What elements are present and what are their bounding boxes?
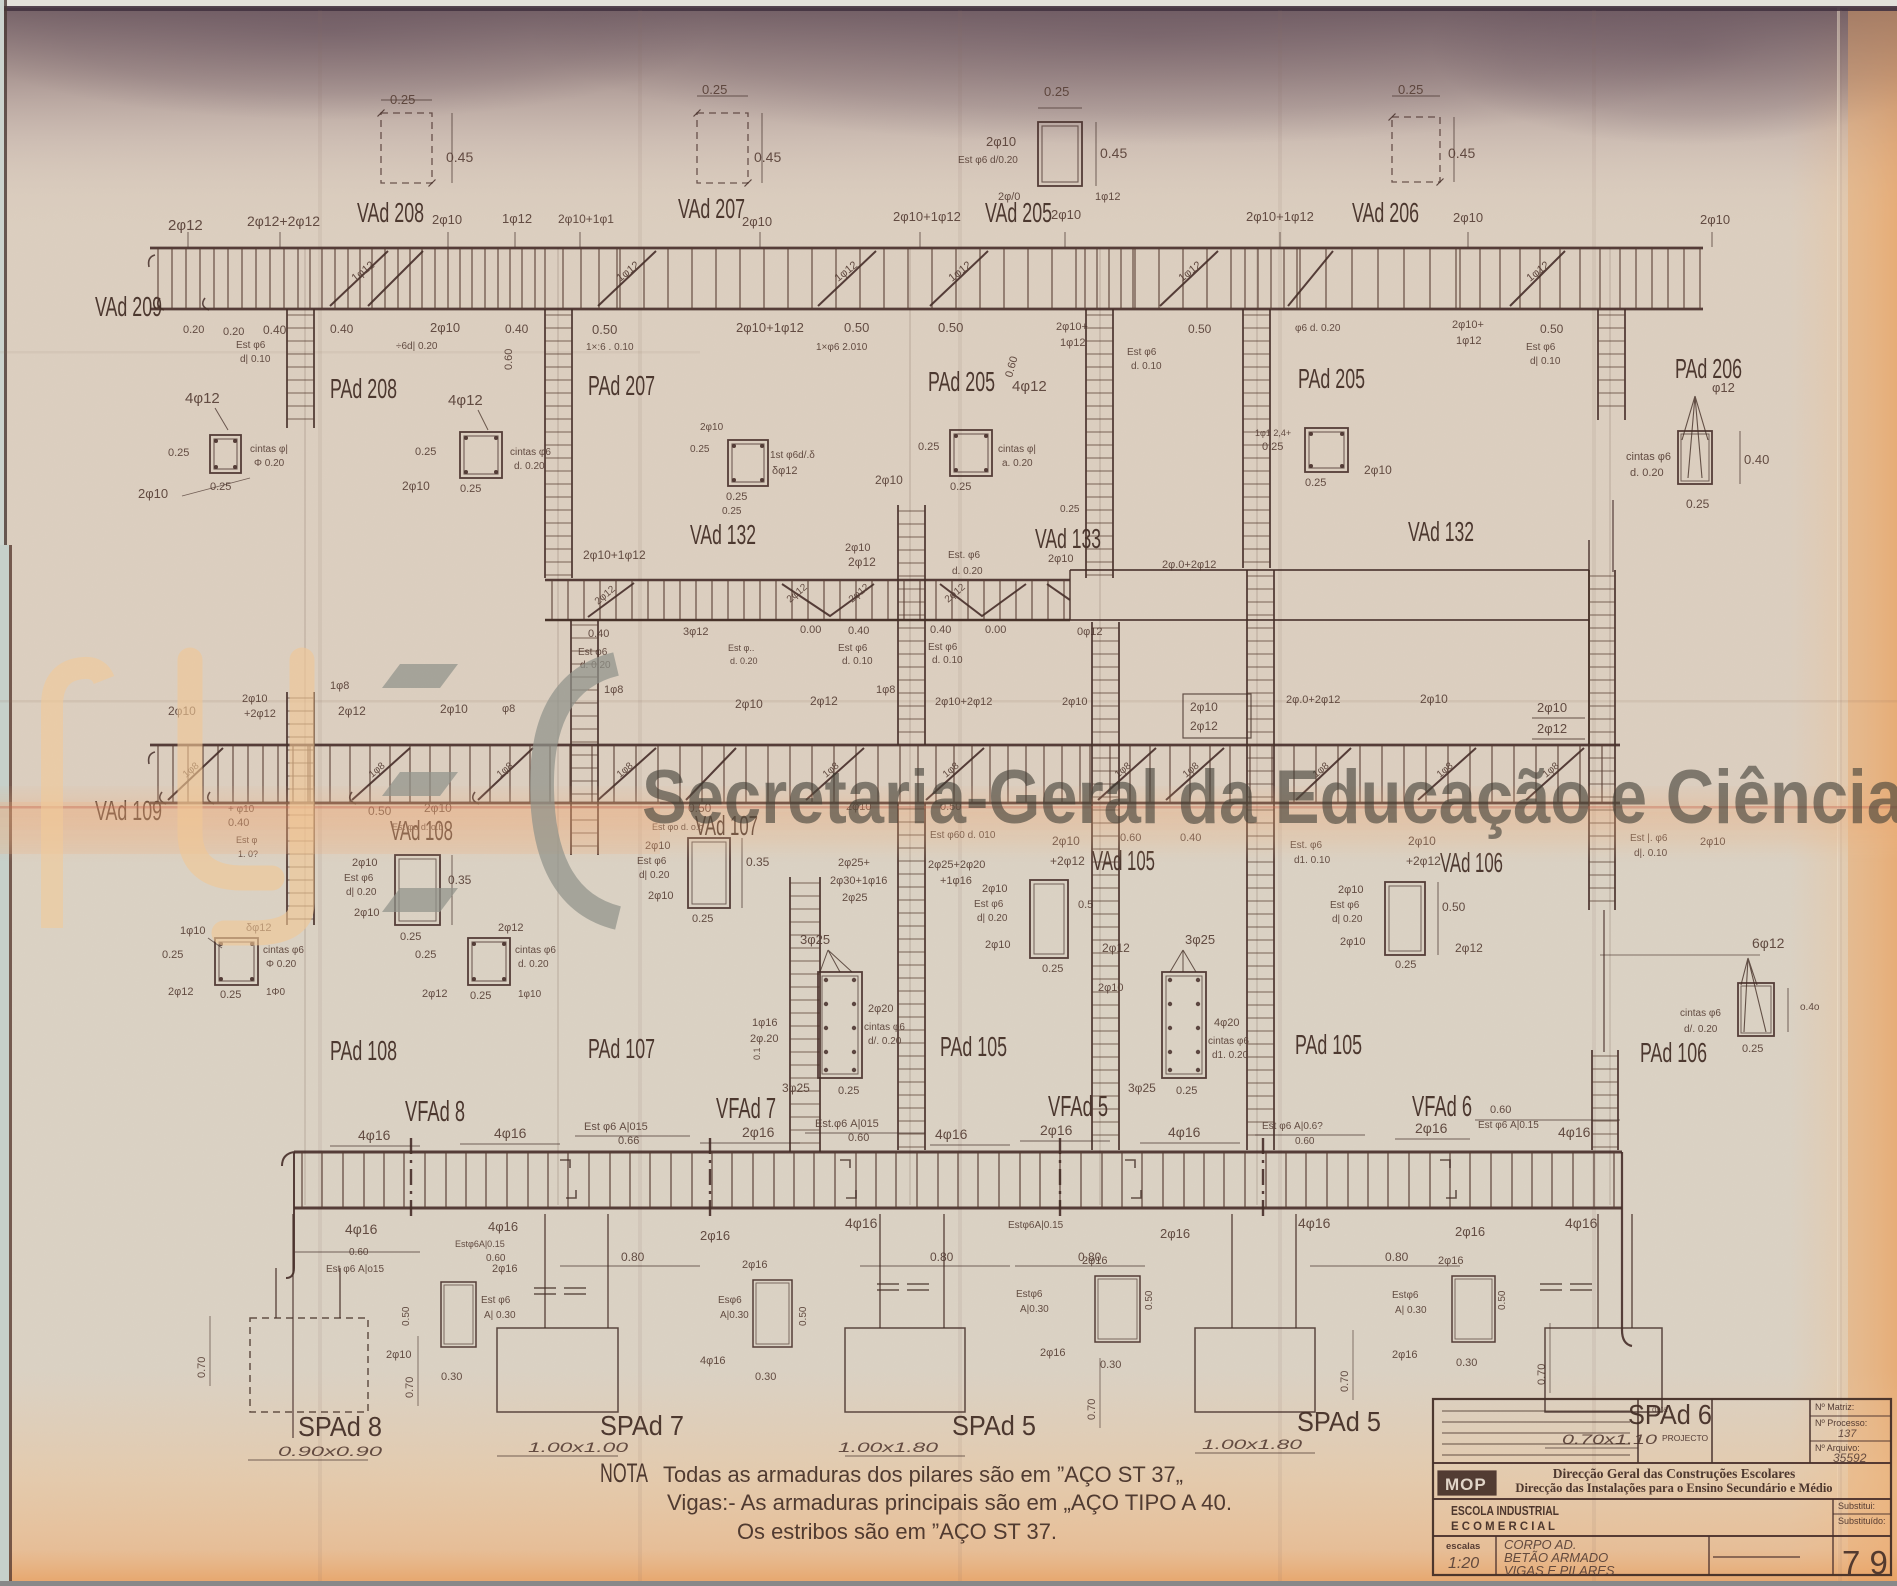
svg-text:1φ12: 1φ12: [1095, 191, 1121, 203]
svg-text:Est φ6: Est φ6: [1127, 347, 1157, 358]
svg-text:escalas: escalas: [1446, 1541, 1480, 1552]
svg-text:0.50: 0.50: [1497, 1290, 1508, 1310]
svg-text:Estφ6A|0.15: Estφ6A|0.15: [1008, 1220, 1064, 1231]
svg-text:2φ12: 2φ12: [338, 704, 366, 718]
svg-text:0.40: 0.40: [505, 322, 529, 336]
svg-text:0.25: 0.25: [726, 491, 747, 503]
svg-text:PAd 205: PAd 205: [928, 366, 995, 397]
svg-text:d| 0.20: d| 0.20: [977, 913, 1008, 924]
svg-text:VAd 208: VAd 208: [357, 197, 424, 228]
svg-text:0.25: 0.25: [918, 441, 939, 453]
svg-text:Est φ6: Est φ6: [1526, 342, 1556, 353]
svg-text:Direcção das Instalações para: Direcção das Instalações para o Ensino S…: [1515, 1481, 1832, 1495]
svg-text:1Φ0: 1Φ0: [266, 987, 286, 998]
svg-text:2φ10: 2φ10: [1338, 884, 1364, 896]
svg-text:2φ12: 2φ12: [1455, 941, 1483, 955]
svg-text:0.45: 0.45: [446, 149, 473, 165]
svg-text:2φ12: 2φ12: [810, 694, 838, 708]
svg-text:2φ10: 2φ10: [1340, 936, 1366, 948]
svg-text:1φ10: 1φ10: [518, 989, 542, 1000]
svg-text:d| 0.10: d| 0.10: [1530, 356, 1561, 367]
svg-text:0.30: 0.30: [441, 1371, 462, 1383]
svg-text:Est φ6: Est φ6: [838, 643, 868, 654]
svg-text:cintas φ6: cintas φ6: [263, 945, 304, 956]
svg-text:PAd 208: PAd 208: [330, 373, 397, 404]
svg-text:7 9: 7 9: [1842, 1544, 1888, 1581]
svg-text:0.35: 0.35: [448, 873, 472, 887]
svg-text:4φ12: 4φ12: [185, 390, 220, 407]
svg-text:VFAd 7: VFAd 7: [716, 1093, 776, 1125]
svg-text:Direcção Geral das Construções: Direcção Geral das Construções Escolares: [1553, 1466, 1795, 1481]
svg-text:VFAd 8: VFAd 8: [405, 1096, 465, 1128]
svg-text:2φ12: 2φ12: [498, 922, 524, 934]
svg-text:PAd 105: PAd 105: [1295, 1029, 1362, 1060]
svg-text:1φ12: 1φ12: [1060, 337, 1086, 349]
svg-text:4φ16: 4φ16: [345, 1221, 378, 1237]
svg-text:d. 0.20: d. 0.20: [952, 566, 983, 577]
svg-text:2φ10: 2φ10: [1420, 692, 1448, 706]
svg-text:d| 0.20: d| 0.20: [639, 870, 670, 881]
svg-text:VAd 206: VAd 206: [1352, 197, 1419, 228]
svg-text:2φ10: 2φ10: [648, 890, 674, 902]
svg-text:d/. 0.20: d/. 0.20: [868, 1036, 902, 1047]
svg-text:0.25: 0.25: [1262, 441, 1283, 453]
svg-text:2φ.0+2φ12: 2φ.0+2φ12: [1286, 694, 1340, 706]
svg-text:Est φ6: Est φ6: [344, 873, 374, 884]
svg-text:2φ10: 2φ10: [386, 1349, 412, 1361]
svg-text:0.25: 0.25: [1686, 497, 1710, 511]
svg-text:d. 0.20: d. 0.20: [730, 656, 758, 666]
svg-text:PAd 107: PAd 107: [588, 1033, 655, 1064]
svg-text:d| 0.20: d| 0.20: [1332, 914, 1363, 925]
svg-text:d. 0.20: d. 0.20: [1630, 467, 1664, 479]
svg-text:cintas φ6: cintas φ6: [510, 447, 551, 458]
svg-text:0.45: 0.45: [1448, 145, 1475, 161]
svg-text:Nº Processo:: Nº Processo:: [1815, 1418, 1867, 1428]
svg-text:NOTA: NOTA: [600, 1458, 648, 1488]
svg-text:0.25: 0.25: [702, 82, 727, 97]
svg-text:0.30: 0.30: [1100, 1359, 1121, 1371]
svg-text:Vigas:- As armaduras principa: Vigas:- As armaduras principais são em „…: [667, 1490, 1232, 1515]
svg-text:2φ10: 2φ10: [430, 320, 460, 335]
svg-text:0.25: 0.25: [1398, 82, 1423, 97]
svg-text:E C O M E R C I A L: E C O M E R C I A L: [1451, 1519, 1555, 1533]
svg-text:Est φ6 A|o15: Est φ6 A|o15: [326, 1264, 384, 1275]
svg-text:0.1: 0.1: [752, 1047, 762, 1060]
svg-text:Nº Matriz:: Nº Matriz:: [1815, 1402, 1854, 1412]
svg-text:Estφ6: Estφ6: [1392, 1290, 1419, 1301]
svg-text:d. 0.10: d. 0.10: [1131, 361, 1162, 372]
svg-text:1φ8: 1φ8: [604, 684, 623, 696]
svg-text:4φ16: 4φ16: [488, 1219, 518, 1234]
svg-text:Est. φ6: Est. φ6: [948, 550, 980, 561]
svg-text:VAd 205: VAd 205: [985, 197, 1052, 228]
svg-text:+1φ16: +1φ16: [940, 875, 972, 887]
svg-text:1φ1 2,4+: 1φ1 2,4+: [1255, 428, 1291, 438]
svg-text:4φ16: 4φ16: [700, 1355, 726, 1367]
svg-text:0.70: 0.70: [1339, 1371, 1351, 1392]
svg-text:VFAd 6: VFAd 6: [1412, 1091, 1472, 1123]
svg-text:Substitui:: Substitui:: [1838, 1501, 1875, 1511]
svg-text:Todas as armaduras dos pilares: Todas as armaduras dos pilares são em ”A…: [663, 1462, 1183, 1487]
svg-text:0.25: 0.25: [390, 92, 415, 107]
svg-text:PAd 207: PAd 207: [588, 370, 655, 401]
svg-text:2φ10+1φ1: 2φ10+1φ1: [558, 212, 614, 226]
svg-text:0.25: 0.25: [415, 949, 436, 961]
svg-text:d| 0.20: d| 0.20: [346, 887, 377, 898]
svg-text:0.25: 0.25: [1060, 504, 1080, 515]
svg-text:1.00x1.80: 1.00x1.80: [1202, 1436, 1302, 1452]
svg-text:VAd 207: VAd 207: [678, 193, 745, 224]
svg-text:d1. 0.20: d1. 0.20: [1212, 1050, 1249, 1061]
svg-text:2φ10: 2φ10: [845, 542, 871, 554]
svg-text:0.25: 0.25: [415, 446, 436, 458]
svg-text:0.40: 0.40: [848, 625, 869, 637]
svg-text:2φ10+1φ12: 2φ10+1φ12: [583, 548, 646, 562]
svg-text:Est φ6: Est φ6: [481, 1295, 511, 1306]
svg-text:0.25: 0.25: [1176, 1085, 1197, 1097]
svg-text:÷6d| 0.20: ÷6d| 0.20: [396, 341, 438, 352]
svg-text:2φ10: 2φ10: [354, 907, 380, 919]
svg-text:SPAd 5: SPAd 5: [1297, 1406, 1381, 1437]
svg-text:A|0.30: A|0.30: [720, 1310, 749, 1321]
svg-text:4φ16: 4φ16: [358, 1127, 391, 1143]
svg-text:2φ10+2φ12: 2φ10+2φ12: [935, 696, 992, 708]
svg-text:0.70: 0.70: [1086, 1399, 1098, 1420]
svg-text:ESCOLA INDUSTRIAL: ESCOLA INDUSTRIAL: [1451, 1503, 1559, 1518]
svg-text:2φ16: 2φ16: [1160, 1226, 1190, 1241]
svg-text:2φ.20: 2φ.20: [750, 1033, 779, 1045]
svg-text:2φ10+1φ12: 2φ10+1φ12: [1246, 209, 1314, 224]
svg-text:1φ8: 1φ8: [330, 680, 349, 692]
svg-text:2φ16: 2φ16: [1415, 1120, 1448, 1136]
svg-text:Est φ6 A|015: Est φ6 A|015: [584, 1121, 648, 1133]
svg-text:4φ16: 4φ16: [1558, 1124, 1591, 1140]
svg-text:0.25: 0.25: [162, 949, 183, 961]
svg-text:SPAd 8: SPAd 8: [298, 1411, 382, 1442]
svg-text:φ8: φ8: [502, 703, 515, 715]
svg-text:2φ10: 2φ10: [432, 212, 462, 227]
svg-text:0.40: 0.40: [263, 323, 287, 337]
svg-text:1×:6 . 0.10: 1×:6 . 0.10: [586, 342, 634, 353]
svg-text:0.25: 0.25: [400, 931, 421, 943]
svg-text:0.45: 0.45: [754, 149, 781, 165]
svg-text:0.25: 0.25: [690, 444, 710, 455]
svg-text:Estφ6A|0.15: Estφ6A|0.15: [455, 1239, 505, 1249]
svg-text:2φ10: 2φ10: [1190, 700, 1218, 714]
svg-text:0.25: 0.25: [210, 481, 231, 493]
svg-text:1φ10: 1φ10: [180, 925, 206, 937]
svg-text:d. 0.20: d. 0.20: [518, 959, 549, 970]
svg-text:1.00x1.80: 1.00x1.80: [838, 1439, 938, 1455]
svg-text:0.50: 0.50: [938, 320, 963, 335]
svg-text:0.50: 0.50: [1540, 322, 1564, 336]
svg-text:2φ12: 2φ12: [848, 555, 876, 569]
svg-text:SPAd 6: SPAd 6: [1628, 1399, 1712, 1430]
svg-text:d| 0.10: d| 0.10: [240, 354, 271, 365]
svg-text:2φ25: 2φ25: [842, 892, 868, 904]
svg-text:2φ10: 2φ10: [1051, 207, 1081, 222]
svg-text:0.25: 0.25: [168, 447, 189, 459]
svg-text:2φ10: 2φ10: [982, 883, 1008, 895]
svg-text:PROJECTO: PROJECTO: [1662, 1433, 1709, 1443]
svg-text:Φ 0.20: Φ 0.20: [266, 959, 297, 970]
svg-text:6φ12: 6φ12: [1752, 935, 1785, 951]
svg-text:2φ10: 2φ10: [402, 479, 430, 493]
svg-text:0.50: 0.50: [844, 320, 869, 335]
svg-text:1st φ6d/.δ: 1st φ6d/.δ: [770, 450, 815, 461]
svg-text:A| 0.30: A| 0.30: [484, 1310, 516, 1321]
svg-text:2φ12+2φ12: 2φ12+2φ12: [247, 213, 320, 229]
svg-text:A|0.30: A|0.30: [1020, 1304, 1049, 1315]
svg-text:4φ16: 4φ16: [935, 1126, 968, 1142]
svg-text:a. 0.20: a. 0.20: [1002, 458, 1033, 469]
svg-text:0.60: 0.60: [1490, 1104, 1511, 1116]
svg-text:cintas φ6: cintas φ6: [1680, 1008, 1721, 1019]
svg-text:2φ10+1φ12: 2φ10+1φ12: [893, 209, 961, 224]
svg-text:Est.φ6 A|015: Est.φ6 A|015: [815, 1118, 879, 1130]
svg-text:0.00: 0.00: [985, 624, 1006, 636]
svg-text:0.70: 0.70: [196, 1357, 208, 1378]
svg-text:0.50: 0.50: [1188, 322, 1212, 336]
svg-text:PAd 105: PAd 105: [940, 1031, 1007, 1062]
svg-text:d. 0.10: d. 0.10: [932, 655, 963, 666]
svg-text:Est φ..: Est φ..: [728, 643, 754, 653]
svg-text:VAd 132: VAd 132: [1408, 516, 1474, 547]
svg-text:4φ16: 4φ16: [1298, 1215, 1331, 1231]
svg-text:VIGAS E PILARES: VIGAS E PILARES: [1504, 1563, 1615, 1578]
svg-text:0.80: 0.80: [621, 1250, 645, 1264]
svg-text:2φ10: 2φ10: [700, 422, 724, 433]
svg-text:Est φ6 A|0.15: Est φ6 A|0.15: [1478, 1120, 1539, 1131]
svg-text:0.60: 0.60: [503, 349, 515, 370]
svg-text:Secretaria-Geral da Educação e: Secretaria-Geral da Educação e Ciência: [642, 755, 1897, 840]
svg-text:Estφ6: Estφ6: [1016, 1289, 1043, 1300]
svg-text:2φ16: 2φ16: [1040, 1347, 1066, 1359]
svg-text:VAd 132: VAd 132: [690, 519, 756, 550]
svg-text:cintas φ|: cintas φ|: [250, 444, 288, 455]
svg-text:PAd 108: PAd 108: [330, 1035, 397, 1066]
svg-text:1φ12: 1φ12: [1456, 335, 1482, 347]
svg-text:2φ30+1φ16: 2φ30+1φ16: [830, 875, 887, 887]
svg-text:1φ12: 1φ12: [502, 211, 532, 226]
svg-text:2φ16: 2φ16: [700, 1228, 730, 1243]
svg-text:0.25: 0.25: [950, 481, 971, 493]
svg-text:0.25: 0.25: [838, 1085, 859, 1097]
svg-text:2φ10: 2φ10: [742, 214, 772, 229]
svg-text:+2φ12: +2φ12: [244, 708, 276, 720]
svg-text:cintas φ6: cintas φ6: [1626, 451, 1671, 463]
svg-text:Est φ6: Est φ6: [1330, 900, 1360, 911]
svg-text:φ12: φ12: [1712, 380, 1735, 395]
svg-text:2φ10: 2φ10: [242, 693, 268, 705]
svg-text:4φ16: 4φ16: [1168, 1124, 1201, 1140]
svg-text:o.4o: o.4o: [1800, 1002, 1820, 1013]
svg-text:0.25: 0.25: [1742, 1043, 1763, 1055]
svg-text:0.45: 0.45: [1100, 145, 1127, 161]
svg-text:Est φ6: Est φ6: [928, 642, 958, 653]
svg-text:2φ16: 2φ16: [742, 1124, 775, 1140]
svg-text:A| 0.30: A| 0.30: [1395, 1305, 1427, 1316]
svg-text:2φ10+: 2φ10+: [1056, 321, 1088, 333]
svg-text:1.00x1.00: 1.00x1.00: [528, 1439, 628, 1455]
svg-text:2φ16: 2φ16: [1392, 1349, 1418, 1361]
svg-text:0.50: 0.50: [798, 1306, 809, 1326]
svg-text:0.25: 0.25: [220, 989, 241, 1001]
svg-text:2φ10: 2φ10: [1048, 553, 1074, 565]
svg-text:2φ12: 2φ12: [168, 986, 194, 998]
svg-text:Substituído:: Substituído:: [1838, 1516, 1886, 1526]
svg-text:4φ20: 4φ20: [1214, 1017, 1240, 1029]
svg-text:Est φ6: Est φ6: [974, 899, 1004, 910]
svg-text:d. 0.20: d. 0.20: [514, 461, 545, 472]
svg-text:0.30: 0.30: [1456, 1357, 1477, 1369]
svg-text:φ6 d. 0.20: φ6 d. 0.20: [1295, 323, 1341, 334]
svg-text:2φ10: 2φ10: [1364, 463, 1392, 477]
svg-text:2φ10: 2φ10: [1098, 982, 1124, 994]
svg-text:2φ10: 2φ10: [1700, 212, 1730, 227]
svg-text:SPAd 7: SPAd 7: [600, 1410, 684, 1441]
svg-text:0.25: 0.25: [470, 990, 491, 1002]
svg-text:4φ12: 4φ12: [448, 392, 483, 409]
svg-text:1φ16: 1φ16: [752, 1017, 778, 1029]
svg-text:MOP: MOP: [1445, 1475, 1487, 1494]
svg-text:0.30: 0.30: [755, 1371, 776, 1383]
svg-text:Φ 0.20: Φ 0.20: [254, 458, 285, 469]
svg-text:0.90x0.90: 0.90x0.90: [278, 1443, 382, 1459]
svg-text:PAd 205: PAd 205: [1298, 363, 1365, 394]
svg-text:cintas φ6: cintas φ6: [515, 945, 556, 956]
svg-text:1:20: 1:20: [1448, 1555, 1479, 1572]
svg-text:2φ16: 2φ16: [1455, 1224, 1485, 1239]
svg-text:2φ16: 2φ16: [492, 1263, 518, 1275]
svg-text:2φ10: 2φ10: [1062, 696, 1088, 708]
svg-text:Est φ6 d/0.20: Est φ6 d/0.20: [958, 155, 1018, 166]
svg-text:0.50: 0.50: [1144, 1290, 1155, 1310]
svg-text:0.50: 0.50: [401, 1306, 412, 1326]
svg-text:2φ16: 2φ16: [1040, 1122, 1073, 1138]
svg-text:2φ12: 2φ12: [1537, 721, 1567, 736]
svg-text:SPAd 5: SPAd 5: [952, 1410, 1036, 1441]
svg-text:d/. 0.20: d/. 0.20: [1684, 1024, 1718, 1035]
svg-text:2φ16: 2φ16: [1438, 1255, 1464, 1267]
svg-text:2φ10: 2φ10: [440, 702, 468, 716]
svg-text:δφ12: δφ12: [772, 465, 798, 477]
svg-text:Est φ6: Est φ6: [236, 340, 266, 351]
svg-text:2φ10: 2φ10: [1453, 210, 1483, 225]
svg-text:3φ25: 3φ25: [1185, 932, 1215, 947]
svg-text:137: 137: [1838, 1428, 1857, 1440]
svg-text:0.50: 0.50: [1442, 900, 1466, 914]
svg-text:2φ10: 2φ10: [735, 697, 763, 711]
svg-text:2φ16: 2φ16: [1082, 1255, 1108, 1267]
svg-text:0.25: 0.25: [1395, 959, 1416, 971]
svg-text:2φ20: 2φ20: [868, 1003, 894, 1015]
svg-text:2φ10: 2φ10: [138, 486, 168, 501]
svg-text:0.70: 0.70: [1536, 1364, 1548, 1385]
svg-text:4φ12: 4φ12: [1012, 378, 1047, 395]
svg-text:2φ16: 2φ16: [742, 1259, 768, 1271]
svg-text:1×φ6 2.010: 1×φ6 2.010: [816, 342, 868, 353]
svg-text:VAd 133: VAd 133: [1035, 523, 1101, 554]
svg-text:3φ25: 3φ25: [800, 932, 830, 947]
svg-text:3φ25: 3φ25: [1128, 1081, 1156, 1095]
svg-text:d. 0.10: d. 0.10: [842, 656, 873, 667]
svg-text:0.20: 0.20: [223, 326, 244, 338]
svg-text:1φ8: 1φ8: [876, 684, 895, 696]
svg-text:0.5: 0.5: [1078, 899, 1093, 911]
svg-text:Os estribos são em ”AÇO ST: Os estribos são em ”AÇO ST 37.: [737, 1519, 1057, 1544]
svg-text:PAd 106: PAd 106: [1640, 1037, 1707, 1068]
svg-text:0.80: 0.80: [930, 1250, 954, 1264]
svg-text:cintas φ6: cintas φ6: [1208, 1036, 1249, 1047]
svg-text:0.60: 0.60: [848, 1132, 869, 1144]
svg-text:0.40: 0.40: [930, 624, 951, 636]
svg-text:data: data: [1652, 1405, 1668, 1414]
svg-text:4φ16: 4φ16: [1565, 1215, 1598, 1231]
svg-text:0.40: 0.40: [1744, 452, 1769, 467]
svg-text:VAd 209: VAd 209: [95, 291, 162, 322]
svg-text:cintas φ6: cintas φ6: [864, 1022, 905, 1033]
svg-text:0.25: 0.25: [1305, 477, 1326, 489]
svg-text:2φ10: 2φ10: [986, 134, 1016, 149]
svg-text:3φ25: 3φ25: [782, 1081, 810, 1095]
svg-text:35592: 35592: [1833, 1451, 1867, 1465]
svg-text:2φ10: 2φ10: [1537, 700, 1567, 715]
svg-text:Esφ6: Esφ6: [718, 1295, 742, 1306]
svg-text:2φ12: 2φ12: [422, 988, 448, 1000]
svg-text:0.25: 0.25: [692, 913, 713, 925]
svg-text:cintas φ|: cintas φ|: [998, 444, 1036, 455]
svg-text:2φ10+: 2φ10+: [1452, 319, 1484, 331]
svg-text:0.25: 0.25: [722, 506, 742, 517]
svg-text:3φ12: 3φ12: [683, 626, 709, 638]
svg-text:0.25: 0.25: [1042, 963, 1063, 975]
svg-text:2φ10: 2φ10: [985, 939, 1011, 951]
svg-text:0.66: 0.66: [618, 1135, 639, 1147]
svg-text:0.00: 0.00: [800, 624, 821, 636]
svg-text:4φ16: 4φ16: [845, 1215, 878, 1231]
svg-text:2φ10: 2φ10: [875, 473, 903, 487]
svg-text:0.50: 0.50: [592, 322, 617, 337]
svg-text:2φ10+1φ12: 2φ10+1φ12: [736, 320, 804, 335]
svg-text:0.25: 0.25: [1044, 84, 1069, 99]
svg-text:0.40: 0.40: [330, 322, 354, 336]
svg-text:4φ16: 4φ16: [494, 1125, 527, 1141]
svg-text:0.80: 0.80: [1385, 1250, 1409, 1264]
svg-text:Est φ6 A|0.6?: Est φ6 A|0.6?: [1262, 1121, 1323, 1132]
svg-text:VFAd 5: VFAd 5: [1048, 1091, 1108, 1123]
svg-text:0.20: 0.20: [183, 324, 204, 336]
svg-text:2φ12: 2φ12: [1190, 719, 1218, 733]
svg-text:0.25: 0.25: [460, 483, 481, 495]
svg-text:2φ12: 2φ12: [168, 217, 203, 234]
svg-text:0.60: 0.60: [1295, 1136, 1315, 1147]
svg-text:0.70: 0.70: [404, 1377, 416, 1398]
